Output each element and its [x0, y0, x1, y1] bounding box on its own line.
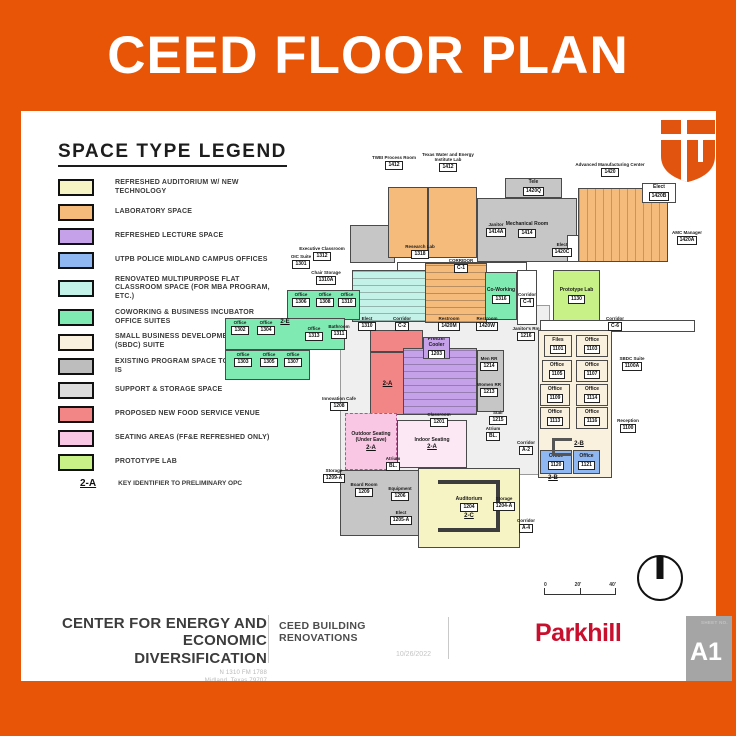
key-2b-label: 2-B	[572, 440, 586, 447]
legend-swatch	[58, 406, 94, 423]
room-label: Indoor Seating	[415, 438, 450, 444]
room-tag: 1412	[385, 161, 402, 170]
room-tag: 1420C	[552, 248, 573, 257]
room-tag: 1301	[292, 260, 309, 269]
corridor-a2-label: CorridorA-2	[512, 440, 540, 455]
corridor-c2-label: CorridorC-2	[388, 316, 416, 331]
room-label: Mechanical Room	[506, 222, 549, 228]
room-label: Storage	[326, 468, 343, 473]
storage-1209-label: Storage1209-A	[320, 468, 348, 483]
room-office-1107: Office1107	[576, 360, 608, 382]
room-tag: 1302	[231, 326, 248, 335]
room-tag: 1316	[492, 295, 509, 304]
room-label: Freezer Cooler	[424, 337, 449, 349]
office-1305-label: Office1305	[258, 352, 280, 367]
room-tag: 1420A	[677, 236, 698, 245]
room-tag: 1414	[518, 229, 535, 238]
room-label: Office	[319, 292, 332, 297]
room-label: Innovation Cafe	[322, 396, 356, 401]
legend-swatch	[58, 334, 94, 351]
project-address-line1: N 1310 FM 1788	[39, 669, 267, 677]
scale-line	[544, 588, 616, 595]
room-label: Texas Water and Energy Institute Lab	[422, 152, 474, 162]
room-label: Men RR	[481, 356, 498, 361]
banner: CEED FLOOR PLAN	[0, 0, 736, 111]
opc-key: 2-A	[383, 381, 393, 387]
room-label: Files	[552, 338, 563, 344]
classroom-label: Classroom1201	[422, 412, 456, 427]
legend-item-label: SUPPORT & STORAGE SPACE	[115, 386, 222, 395]
corridor-top-label: CORRIDORC-1	[440, 258, 482, 273]
room-label: Office	[548, 410, 562, 416]
room-indoor-seating: Indoor Seating2-A	[397, 420, 467, 468]
room-label: Janitor's Rm	[512, 326, 539, 331]
room-label: Janitor	[488, 222, 503, 227]
room-food-service-kitchen: 2-A	[370, 352, 405, 415]
stair-label: Stair1215	[486, 410, 510, 425]
room-label: Elect	[362, 316, 373, 321]
office-1310-label: Office1310	[336, 292, 358, 307]
room-label: Chair Storage	[311, 270, 341, 275]
room-label: Office	[585, 363, 599, 369]
room-tag: 1310	[358, 322, 375, 331]
room-label: Reception	[617, 418, 639, 423]
room-tag: 1105	[549, 370, 566, 379]
project-title: CENTER FOR ENERGY AND ECONOMIC DIVERSIFI…	[39, 615, 267, 686]
room-label: Women RR	[477, 382, 501, 387]
legend-swatch	[58, 280, 94, 297]
board-room-label: Board Room1209	[348, 482, 380, 497]
room-label: Elect	[557, 242, 568, 247]
room-office-1109: Office1109	[540, 384, 570, 406]
sheet-number: A1	[690, 640, 728, 665]
room-label: Office	[295, 292, 308, 297]
room-tag: BL.	[386, 462, 400, 471]
room-tag: 1304	[257, 326, 274, 335]
floorplan: 0 20' 40' Tele1420QMechanical Room1414IR…	[222, 150, 716, 615]
chair-storage-label: Chair Storage1310A	[308, 270, 344, 285]
drawing-sheet: SPACE TYPE LEGEND REFRESHED AUDITORIUM W…	[21, 111, 716, 681]
room-label: TWEI Process Room	[372, 155, 416, 160]
room-label: Office	[548, 387, 562, 393]
room-label: Outdoor Seating (Under Eave)	[346, 432, 396, 444]
room-label: Office	[550, 363, 564, 369]
opc-key: 2-B	[548, 475, 558, 481]
legend-swatch	[58, 430, 94, 447]
room-label: Office	[260, 320, 273, 325]
bathroom-1311-label: Bathroom1311	[326, 324, 352, 339]
key-2b2-label: 2-B	[546, 474, 560, 481]
equipment-label: Equipment1206	[384, 486, 416, 501]
opc-key: 2-A	[366, 445, 376, 451]
innovation-cafe-label: Innovation Cafe1208	[320, 396, 358, 411]
room-tag: 1201	[430, 418, 447, 427]
room-label: Corridor	[606, 316, 624, 321]
room-label: Office	[585, 410, 599, 416]
room-tag: 1103	[584, 345, 601, 354]
room-tag: 1420B	[649, 192, 670, 201]
legend-item-label: PROTOTYPE LAB	[115, 458, 177, 467]
room-tag: 1130	[568, 295, 585, 304]
room-label: Office	[308, 326, 321, 331]
room-tag: 1101	[550, 345, 567, 354]
room-tag: 1414A	[486, 228, 507, 237]
room-tag: 1203	[428, 350, 445, 359]
corridor-right-label: CorridorC-6	[600, 316, 630, 331]
room-freezer-cooler: Freezer Cooler1203	[423, 337, 450, 359]
storage-1204-label: Storage1204-A	[490, 496, 518, 511]
men-rr-label: Men RR1214	[474, 356, 504, 371]
room-tag: 1307	[284, 358, 301, 367]
room-label: Equipment	[388, 486, 411, 491]
opc-key: 2-B	[574, 441, 584, 447]
room-label: Restroom	[438, 316, 459, 321]
room-files-1101: Files1101	[544, 335, 572, 357]
room-tag: C-2	[395, 322, 409, 331]
page-title: CEED FLOOR PLAN	[107, 25, 628, 86]
oic-suite-label: OIC Suite1301	[286, 254, 316, 269]
room-tag: 1412	[439, 163, 456, 172]
research-lab-label: Research Lab1318	[400, 244, 440, 259]
amc-elect-left-label: Elect1420C	[550, 242, 574, 257]
room-tag: 1306	[292, 298, 309, 307]
room-label: Classroom	[427, 412, 450, 417]
amc-manager-label: AMC Manager1420A	[666, 230, 708, 245]
room-label: Corridor	[393, 316, 411, 321]
legend-item-label: LABORATORY SPACE	[115, 208, 192, 217]
room-tag: 1113	[547, 417, 564, 426]
room-label: Office	[585, 338, 599, 344]
project-title-line1: CENTER FOR ENERGY AND ECONOMIC	[39, 615, 267, 650]
room-tag: 1215	[489, 416, 506, 425]
amc-label: Advanced Manufacturing Center1420	[574, 162, 646, 177]
women-rr-label: Women RR1213	[474, 382, 504, 397]
titleblock-divider-1	[268, 615, 269, 663]
office-1303-label: Office1303	[232, 352, 254, 367]
room-tele-room: Tele1420Q	[505, 178, 562, 198]
room-label: Executive Classroom	[299, 246, 345, 251]
room-tag: A-4	[519, 524, 533, 533]
legend-swatch	[58, 179, 94, 196]
reception-label: Reception1100	[612, 418, 644, 433]
legend-swatch	[58, 204, 94, 221]
room-label: Office	[341, 292, 354, 297]
room-tag: 1120	[548, 461, 565, 470]
north-arrow	[637, 555, 683, 601]
office-1313-label: Office1313	[302, 326, 326, 341]
room-label: Advanced Manufacturing Center	[575, 162, 644, 167]
parkhill-logo: Parkhill	[535, 619, 621, 648]
legend-swatch	[58, 454, 94, 471]
restroom-w-label: Restroom1420W	[472, 316, 502, 331]
office-1306-label: Office1306	[290, 292, 312, 307]
room-tag: 1318	[411, 250, 428, 259]
room-office-1113: Office1113	[540, 407, 570, 429]
room-tag: 1214	[480, 362, 497, 371]
room-tag: 1206	[391, 492, 408, 501]
room-label: Atrium	[486, 426, 501, 431]
room-label: Research Lab	[405, 244, 435, 249]
office-1307-label: Office1307	[282, 352, 304, 367]
room-tag: 1310A	[316, 276, 337, 285]
room-label: Office	[263, 352, 276, 357]
room-office-1105: Office1105	[542, 360, 572, 382]
room-label: Stair	[493, 410, 503, 415]
room-tag: 1420	[601, 168, 618, 177]
legend-swatch	[58, 358, 94, 375]
north-needle	[657, 556, 664, 579]
reception-desk	[552, 438, 572, 456]
room-police-office-1121: Office1121	[573, 450, 600, 474]
restroom-m-label: Restroom1420M	[434, 316, 464, 331]
room-prototype-lab: Prototype Lab1130	[553, 270, 600, 322]
room-label: Office	[237, 352, 250, 357]
sheet-date: 10/26/2022	[279, 651, 431, 658]
atrium-label-1: AtriumBL.	[380, 456, 406, 471]
legend-item-label: REFRESHED LECTURE SPACE	[115, 232, 223, 241]
office-1302-label: Office1302	[228, 320, 252, 335]
room-tag: C-6	[608, 322, 622, 331]
room-amc-elect: Elect1420B	[642, 183, 676, 203]
room-tag: 1313	[305, 332, 322, 341]
key-identifier-sample: 2-A	[80, 478, 96, 489]
elect-1205-label: Elect1205-A	[388, 510, 414, 525]
room-tag: 1312	[313, 252, 330, 261]
legend-swatch	[58, 382, 94, 399]
scale-bar: 0 20' 40'	[544, 582, 616, 595]
sheet-title: CEED BUILDING RENOVATIONS	[279, 620, 431, 644]
sheet-title-block: CEED BUILDING RENOVATIONS 10/26/2022	[279, 620, 431, 658]
room-label: Atrium	[386, 456, 401, 461]
room-tag: 1308	[316, 298, 333, 307]
room-tag: 1209-A	[323, 474, 345, 483]
room-office-1114: Office1114	[576, 384, 608, 406]
room-label: Prototype Lab	[560, 288, 594, 294]
sheet-number-label: SHEET NO.	[690, 620, 728, 625]
room-label: Office	[287, 352, 300, 357]
room-label: SBDC Suite	[619, 356, 644, 361]
twei-lab-label: Texas Water and Energy Institute Lab1412	[422, 152, 474, 172]
janitors-rm-label: Janitor's Rm1216	[510, 326, 542, 341]
room-tag: A-2	[519, 446, 533, 455]
room-office-1116: Office1116	[576, 407, 608, 429]
legend-swatch	[58, 228, 94, 245]
room-label: Board Room	[351, 482, 378, 487]
opc-key: 2-A	[427, 444, 437, 450]
room-label: Office	[234, 320, 247, 325]
room-tag: 1420M	[438, 322, 459, 331]
key-2e-label: 2-E	[278, 318, 292, 325]
elect-1310-label: Elect1310	[356, 316, 378, 331]
room-tag: 1213	[480, 388, 497, 397]
room-label: Tele	[529, 180, 539, 186]
legend-swatch	[58, 309, 94, 326]
twei-process-label: TWEI Process Room1412	[372, 155, 416, 170]
corridor-mid-label: CorridorC-4	[511, 292, 543, 307]
room-label: Storage	[496, 496, 513, 501]
office-1304-label: Office1304	[254, 320, 278, 335]
room-tag: 1209	[355, 488, 372, 497]
sbdc-suite-label: SBDC Suite1100A	[614, 356, 650, 371]
room-tag: C-4	[520, 298, 534, 307]
legend-swatch	[58, 252, 94, 269]
room-tag: 1303	[234, 358, 251, 367]
room-tag: C-1	[454, 264, 468, 273]
room-tag: 1310	[338, 298, 355, 307]
room-tag: 1305	[260, 358, 277, 367]
janitor-mech-label: Janitor1414A	[482, 222, 510, 237]
room-label: CORRIDOR	[449, 258, 474, 263]
room-executive-classroom	[352, 270, 427, 322]
room-tag: 1121	[578, 461, 595, 470]
room-tag: 1420W	[476, 322, 498, 331]
room-label: Bathroom	[328, 324, 349, 329]
room-label: Corridor	[517, 518, 535, 523]
room-tag: 1114	[584, 394, 601, 403]
room-label: OIC Suite	[291, 254, 311, 259]
room-tag: 1420Q	[523, 187, 544, 196]
titleblock-divider-2	[448, 617, 449, 659]
room-tag: 1204-A	[493, 502, 515, 511]
project-title-line2: DIVERSIFICATION	[39, 650, 267, 667]
page: { "banner": { "title": "CEED FLOOR PLAN"…	[0, 0, 736, 736]
room-tag: 1109	[547, 394, 564, 403]
sheet-number-box: SHEET NO. A1	[686, 616, 732, 683]
room-tag: 1205-A	[390, 516, 412, 525]
room-label: AMC Manager	[672, 230, 702, 235]
room-label: Corridor	[517, 440, 535, 445]
room-tag: 1107	[584, 370, 601, 379]
room-tag: 1100A	[622, 362, 642, 371]
room-label: Restroom	[476, 316, 497, 321]
office-1308-label: Office1308	[314, 292, 336, 307]
room-tag: 1100	[620, 424, 637, 433]
room-tag: 1116	[584, 417, 601, 426]
room-label: Elect	[396, 510, 407, 515]
room-label: Corridor	[518, 292, 536, 297]
room-tag: 1311	[331, 330, 348, 339]
room-label: Office	[585, 387, 599, 393]
room-label: Elect	[653, 185, 665, 191]
room-tag: BL.	[486, 432, 500, 441]
room-tag: 1208	[330, 402, 347, 411]
room-tag: 1216	[517, 332, 534, 341]
room-office-1103: Office1103	[576, 335, 608, 357]
corridor-a4-label: CorridorA-4	[512, 518, 540, 533]
room-label: Office	[579, 454, 593, 460]
opc-key: 2-E	[280, 319, 289, 325]
bottom-orange-strip	[0, 681, 736, 736]
atrium-label-2: AtriumBL.	[480, 426, 506, 441]
